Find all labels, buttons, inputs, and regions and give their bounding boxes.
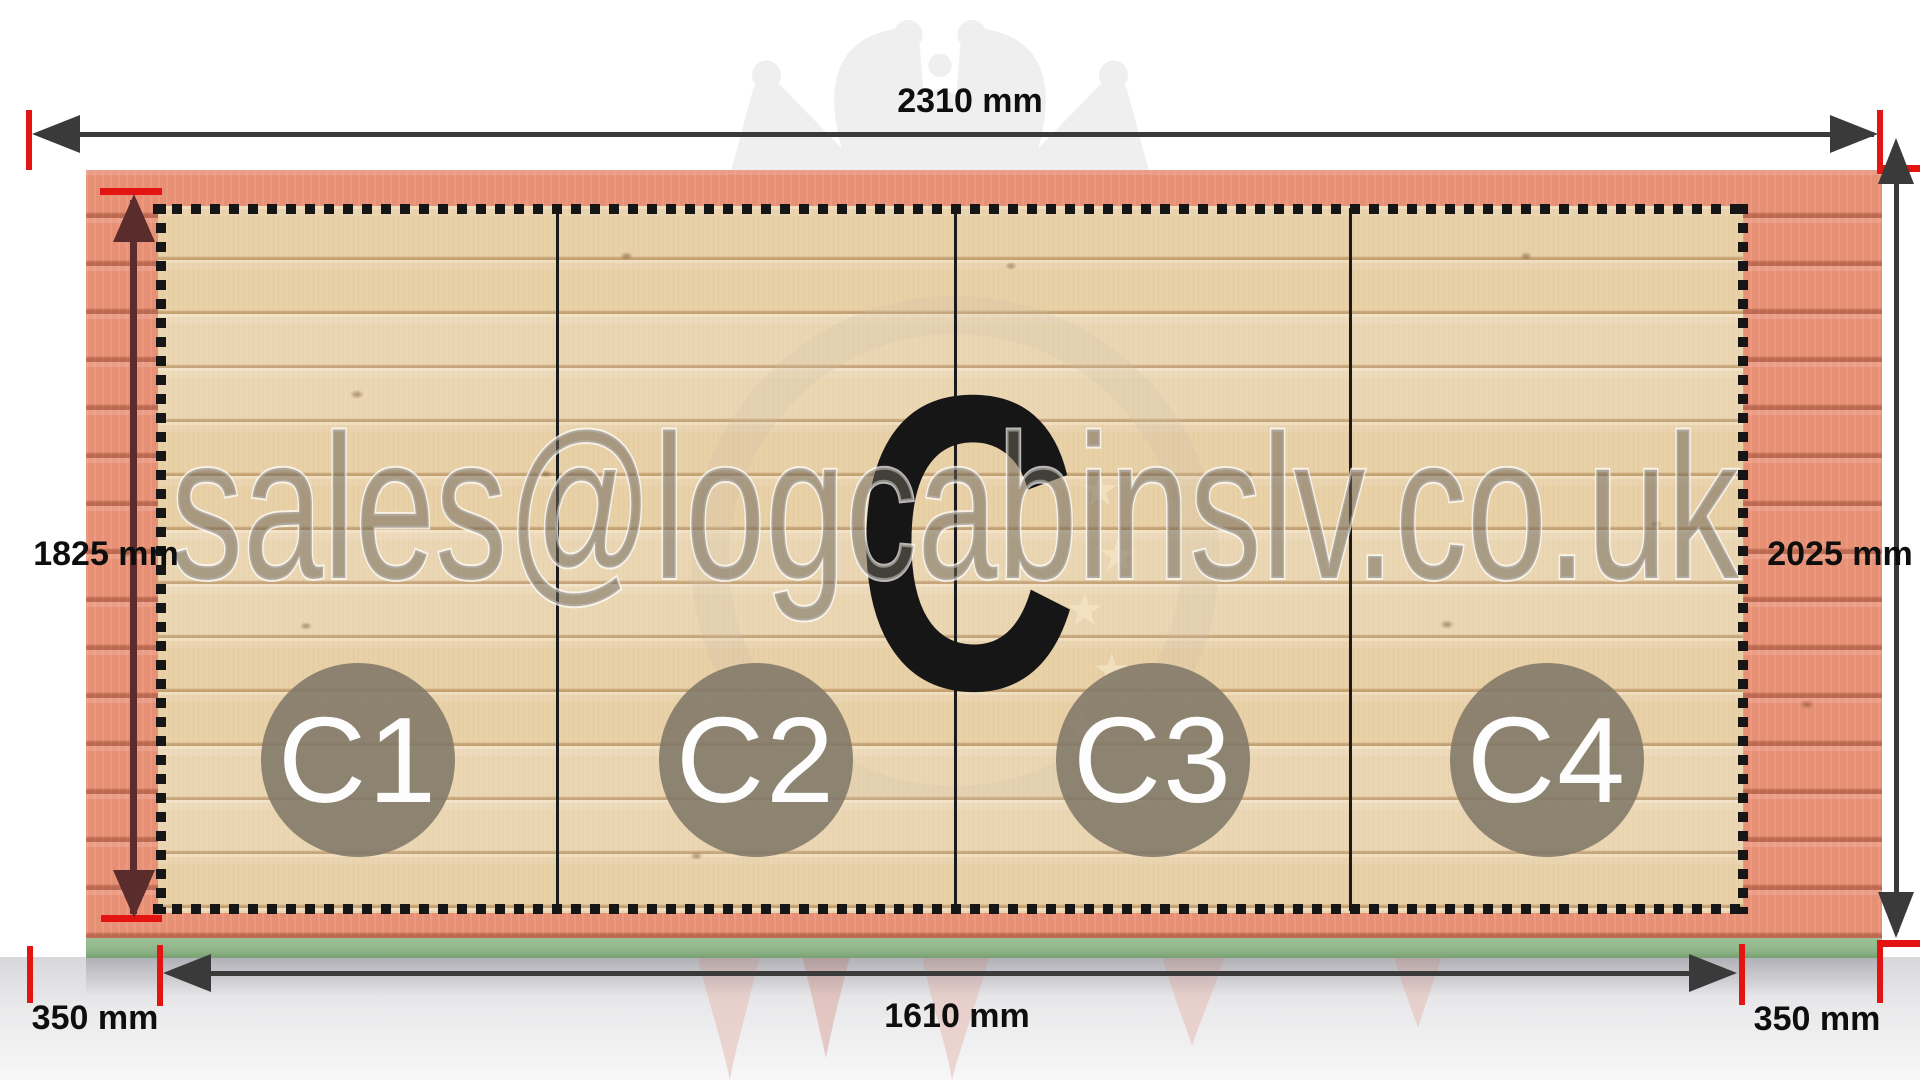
wall-panel-diagram: ★ ★ ★ ★ ★ C1 C2 C3 C4 C sales@logcabinsl…: [0, 0, 1920, 1080]
arrowhead-down-icon: [1878, 892, 1914, 938]
section-label-c1: C1: [278, 690, 438, 830]
dim-label-bottom-right-offset: 350 mm: [1732, 1000, 1902, 1039]
tick-bottom-right-corner: [1877, 940, 1920, 947]
section-circle-c1: C1: [261, 663, 455, 857]
svg-text:★: ★: [1080, 466, 1119, 515]
foundation-strip: [86, 938, 1882, 958]
bottom-arrowhead-right-icon: [1689, 954, 1737, 992]
section-circle-c2: C2: [659, 663, 853, 857]
dim-label-left-height: 1825 mm: [21, 535, 191, 574]
section-divider-1: [556, 208, 559, 911]
arrowhead-up-icon: [1878, 138, 1914, 184]
svg-text:★: ★: [1065, 586, 1104, 635]
section-label-c4: C4: [1467, 690, 1627, 830]
dim-label-top-width: 2310 mm: [820, 82, 1120, 121]
tick-bottom-inner-right: [1739, 944, 1745, 1005]
svg-text:★: ★: [1098, 531, 1137, 580]
maroon-arrowhead-up-icon: [113, 194, 155, 242]
bottom-arrowhead-left-icon: [163, 954, 211, 992]
dim-label-bottom-left-offset: 350 mm: [10, 999, 180, 1038]
section-divider-2: [954, 208, 957, 911]
dotted-border-bottom: [153, 904, 1748, 914]
arrowhead-right-icon: [1830, 115, 1878, 153]
tick-bottom-right: [1877, 940, 1883, 1003]
section-label-c2: C2: [676, 690, 836, 830]
section-divider-3: [1349, 208, 1352, 911]
dim-label-bottom-width: 1610 mm: [807, 997, 1107, 1036]
dim-label-right-height: 2025 mm: [1690, 535, 1920, 574]
dim-line-top: [40, 132, 1874, 137]
dotted-border-top: [153, 204, 1748, 214]
maroon-arrowhead-down-icon: [113, 870, 155, 918]
section-circle-c3: C3: [1056, 663, 1250, 857]
arrowhead-left-icon: [32, 115, 80, 153]
panel-shadow: [86, 958, 1882, 996]
tick-bottom-far-left: [27, 946, 33, 1003]
section-circle-c4: C4: [1450, 663, 1644, 857]
section-label-c3: C3: [1073, 690, 1233, 830]
dim-line-bottom: [190, 971, 1710, 976]
